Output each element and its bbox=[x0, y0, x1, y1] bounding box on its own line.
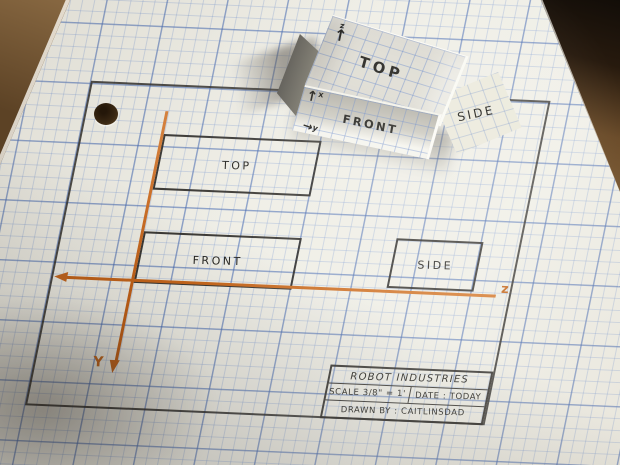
title-block-company: ROBOT INDUSTRIES bbox=[351, 371, 470, 385]
up-arrow-icon: ↑ bbox=[332, 29, 348, 41]
photo-scene: TOP FRONT SIDE Y z ROBOT INDUSTRIES SCAL… bbox=[0, 0, 620, 465]
model-y-axis-arrow: → y bbox=[301, 119, 320, 135]
punch-hole bbox=[94, 103, 118, 125]
title-block: ROBOT INDUSTRIES SCALE 3/8" = 1' DATE : … bbox=[320, 365, 494, 426]
view-label-side: SIDE bbox=[417, 258, 453, 272]
view-label-front: FRONT bbox=[192, 253, 243, 267]
axis-z-label: z bbox=[501, 282, 509, 297]
model-y-axis-label: y bbox=[311, 124, 319, 133]
axis-arrowhead-left-icon bbox=[53, 271, 68, 281]
model-z-axis-arrow: z ↑ bbox=[332, 22, 349, 42]
title-block-date: DATE : TODAY bbox=[415, 391, 482, 403]
model-x-axis-arrow: ↑ x bbox=[305, 89, 325, 105]
model-side-label: SIDE bbox=[456, 103, 496, 125]
folded-paper-model: SIDE z ↑ TOP ↑ x FRONT → y bbox=[228, 0, 520, 188]
model-front-label: FRONT bbox=[342, 112, 400, 138]
photographer-shadow bbox=[0, 290, 225, 465]
view-rect-side: SIDE bbox=[387, 238, 484, 291]
title-block-scale: SCALE 3/8" = 1' bbox=[329, 387, 406, 399]
title-block-drawn-by: DRAWN BY : CAITLINSDAD bbox=[341, 405, 466, 418]
model-top-label: TOP bbox=[358, 52, 406, 84]
